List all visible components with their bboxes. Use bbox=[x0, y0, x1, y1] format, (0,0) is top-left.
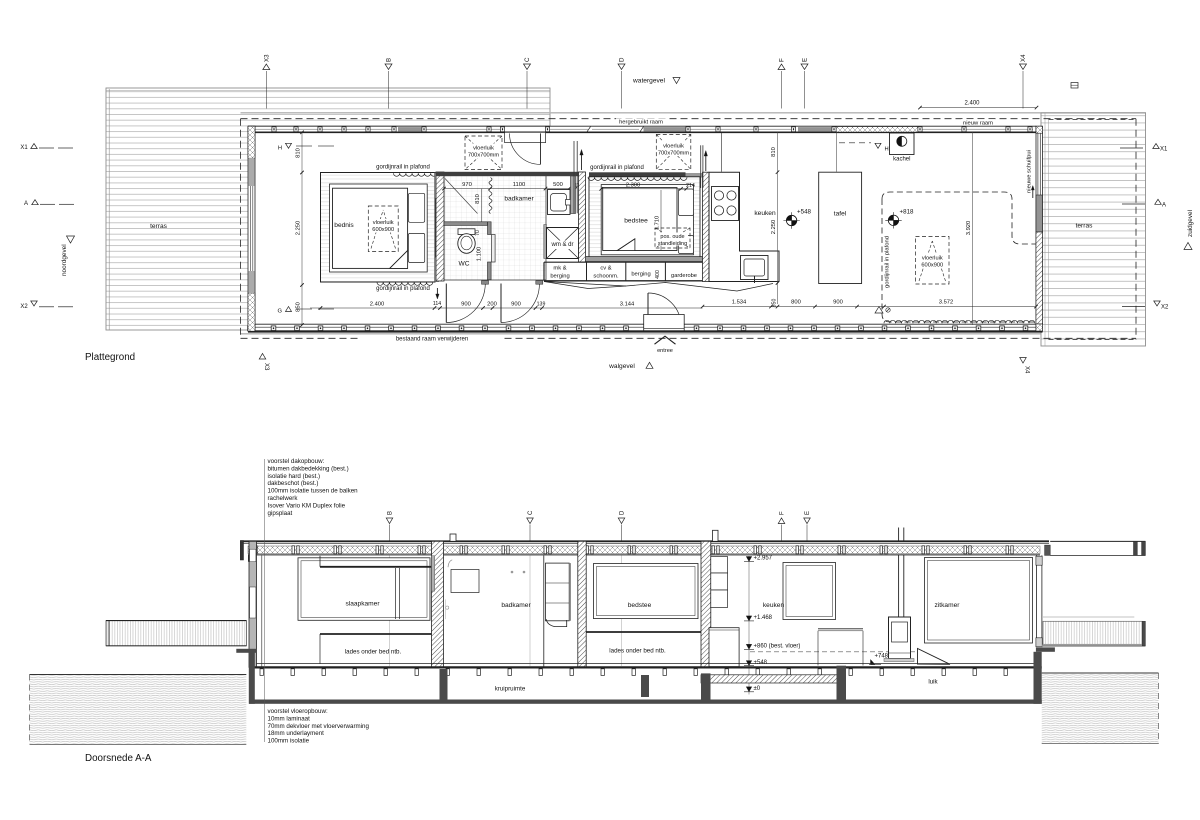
svg-text:970: 970 bbox=[462, 182, 472, 188]
svg-text:1100: 1100 bbox=[513, 182, 525, 188]
svg-text:H: H bbox=[278, 146, 282, 152]
svg-text:kachel: kachel bbox=[893, 157, 910, 163]
svg-text:C: C bbox=[524, 57, 531, 62]
svg-text:900: 900 bbox=[511, 301, 521, 307]
svg-text:700x700mm: 700x700mm bbox=[658, 151, 690, 157]
svg-text:E: E bbox=[802, 58, 809, 62]
svg-text:2.400: 2.400 bbox=[370, 301, 385, 307]
svg-text:850: 850 bbox=[772, 299, 778, 308]
svg-text:D: D bbox=[620, 510, 626, 515]
svg-text:nieuwe schuifpui: nieuwe schuifpui bbox=[1027, 150, 1033, 193]
svg-text:badkamer: badkamer bbox=[504, 196, 534, 203]
svg-text:2.250: 2.250 bbox=[296, 221, 302, 236]
svg-text:X4: X4 bbox=[1020, 54, 1027, 62]
svg-text:2.300: 2.300 bbox=[626, 182, 641, 188]
svg-text:nieuw raam: nieuw raam bbox=[963, 120, 993, 126]
svg-text:18mm underlayment: 18mm underlayment bbox=[268, 730, 325, 737]
svg-text:dakbeschot (best.): dakbeschot (best.) bbox=[268, 480, 319, 487]
svg-text:+2.957: +2.957 bbox=[754, 556, 773, 562]
svg-text:wm & dr: wm & dr bbox=[550, 242, 573, 248]
svg-text:watergevel: watergevel bbox=[632, 78, 665, 85]
svg-text:lades onder bed ntb.: lades onder bed ntb. bbox=[345, 649, 402, 656]
svg-text:3.920: 3.920 bbox=[966, 221, 972, 236]
svg-text:10mm laminaat: 10mm laminaat bbox=[268, 715, 311, 722]
svg-text:bitumen dakbedekking (best.): bitumen dakbedekking (best.) bbox=[268, 465, 349, 472]
svg-text:gordijnrail in plafond: gordijnrail in plafond bbox=[590, 165, 644, 171]
svg-text:isolatie hard (best.): isolatie hard (best.) bbox=[268, 473, 321, 480]
svg-text:900: 900 bbox=[833, 300, 843, 306]
svg-text:B: B bbox=[388, 511, 394, 515]
svg-text:terras: terras bbox=[150, 223, 168, 230]
svg-text:700x700mm: 700x700mm bbox=[468, 153, 500, 159]
svg-text:X2: X2 bbox=[1161, 305, 1169, 311]
svg-text:gordijnrail in plafond: gordijnrail in plafond bbox=[376, 286, 430, 292]
svg-text:voorstel vloeropbouw:: voorstel vloeropbouw: bbox=[268, 708, 328, 715]
svg-text:vloerluik: vloerluik bbox=[663, 144, 684, 150]
svg-text:±0: ±0 bbox=[754, 686, 761, 692]
svg-text:H: H bbox=[885, 146, 889, 152]
svg-text:850: 850 bbox=[296, 302, 302, 312]
svg-text:+548: +548 bbox=[754, 660, 768, 666]
svg-text:X1: X1 bbox=[1160, 147, 1168, 153]
svg-text:1.100: 1.100 bbox=[477, 247, 483, 262]
svg-text:810: 810 bbox=[296, 148, 302, 158]
svg-text:bedstee: bedstee bbox=[624, 218, 648, 225]
svg-text:800: 800 bbox=[791, 300, 801, 306]
svg-text:schoonm.: schoonm. bbox=[593, 273, 619, 279]
svg-text:bedstee: bedstee bbox=[628, 602, 652, 609]
svg-text:noordgevel: noordgevel bbox=[61, 244, 68, 276]
svg-text:139: 139 bbox=[537, 301, 546, 307]
svg-text:lades onder bed ntb.: lades onder bed ntb. bbox=[609, 648, 666, 655]
svg-text:garderobe: garderobe bbox=[671, 273, 697, 279]
svg-text:tafel: tafel bbox=[834, 211, 847, 218]
svg-text:mk &: mk & bbox=[553, 266, 566, 272]
svg-text:gordijnrail in plafond: gordijnrail in plafond bbox=[376, 165, 430, 171]
svg-text:Doorsnede A-A: Doorsnede A-A bbox=[85, 753, 152, 764]
svg-text:X3: X3 bbox=[264, 54, 271, 62]
svg-text:B: B bbox=[386, 58, 393, 62]
svg-text:luik: luik bbox=[928, 679, 938, 686]
svg-text:vloerluik: vloerluik bbox=[473, 146, 494, 152]
svg-text:810: 810 bbox=[771, 147, 777, 157]
svg-text:Plattegrond: Plattegrond bbox=[85, 352, 135, 363]
svg-text:+748: +748 bbox=[874, 654, 888, 660]
svg-text:walgevel: walgevel bbox=[608, 363, 635, 370]
svg-text:F: F bbox=[780, 511, 786, 515]
svg-text:214: 214 bbox=[686, 183, 695, 189]
svg-text:1.534: 1.534 bbox=[732, 300, 747, 306]
svg-text:200: 200 bbox=[487, 301, 497, 307]
svg-text:+860 (best. vloer): +860 (best. vloer) bbox=[754, 644, 801, 650]
svg-text:keuken: keuken bbox=[754, 210, 776, 217]
svg-text:3.572: 3.572 bbox=[939, 300, 954, 306]
svg-text:badkamer: badkamer bbox=[501, 602, 531, 609]
svg-text:voorstel dakopbouw:: voorstel dakopbouw: bbox=[268, 458, 325, 465]
svg-text:600x900: 600x900 bbox=[921, 263, 943, 269]
svg-text:70: 70 bbox=[475, 230, 481, 236]
svg-text:terras: terras bbox=[1076, 223, 1094, 230]
svg-text:+818: +818 bbox=[900, 209, 914, 216]
svg-text:cv &: cv & bbox=[600, 266, 611, 272]
svg-text:bednis: bednis bbox=[334, 222, 354, 229]
svg-text:zuidgevel: zuidgevel bbox=[1187, 210, 1194, 237]
svg-text:A: A bbox=[24, 201, 28, 207]
svg-text:2.250: 2.250 bbox=[771, 220, 777, 235]
svg-text:70mm dekvloer met vloerverwarm: 70mm dekvloer met vloerverwarming bbox=[268, 723, 370, 730]
svg-text:C: C bbox=[528, 510, 534, 515]
svg-text:A: A bbox=[1162, 202, 1166, 208]
svg-text:400: 400 bbox=[655, 270, 661, 279]
svg-text:E: E bbox=[805, 511, 811, 515]
svg-text:600x900: 600x900 bbox=[372, 227, 394, 233]
svg-text:bestaand raam verwijderen: bestaand raam verwijderen bbox=[396, 336, 468, 342]
svg-text:gordijnrail in plafond: gordijnrail in plafond bbox=[885, 236, 891, 288]
svg-text:zitkamer: zitkamer bbox=[935, 602, 961, 609]
svg-text:G: G bbox=[277, 309, 282, 315]
svg-text:hergebruikt raam: hergebruikt raam bbox=[619, 120, 663, 126]
svg-text:X4: X4 bbox=[1023, 366, 1029, 374]
svg-text:entree: entree bbox=[657, 348, 673, 354]
svg-text:Isover Vario KM Duplex folie: Isover Vario KM Duplex folie bbox=[268, 502, 346, 509]
svg-text:500: 500 bbox=[553, 182, 563, 188]
svg-text:WC: WC bbox=[459, 261, 470, 268]
svg-text:114: 114 bbox=[433, 301, 441, 307]
svg-text:D: D bbox=[619, 57, 626, 62]
svg-text:3.144: 3.144 bbox=[620, 301, 635, 307]
svg-text:+548: +548 bbox=[797, 209, 811, 216]
svg-text:2.400: 2.400 bbox=[964, 100, 980, 106]
svg-text:standleiding: standleiding bbox=[658, 241, 687, 247]
svg-text:+1.468: +1.468 bbox=[754, 615, 773, 621]
svg-text:rachelwerk: rachelwerk bbox=[268, 495, 299, 502]
svg-text:810: 810 bbox=[475, 194, 481, 204]
svg-text:X2: X2 bbox=[20, 304, 28, 310]
svg-text:kruipruimte: kruipruimte bbox=[495, 686, 526, 693]
svg-text:100mm isolatie tussen de balke: 100mm isolatie tussen de balken bbox=[268, 488, 359, 495]
svg-text:F: F bbox=[779, 58, 786, 62]
svg-text:X1: X1 bbox=[20, 145, 28, 151]
svg-text:slaapkamer: slaapkamer bbox=[345, 601, 380, 608]
svg-text:vloerluik: vloerluik bbox=[373, 220, 394, 226]
svg-text:berging: berging bbox=[550, 273, 569, 279]
svg-text:pos. oude: pos. oude bbox=[660, 234, 684, 240]
svg-text:vloerluik: vloerluik bbox=[922, 256, 943, 262]
svg-text:gipsplaat: gipsplaat bbox=[268, 510, 293, 517]
svg-text:keuken: keuken bbox=[763, 602, 785, 609]
svg-text:berging: berging bbox=[631, 271, 650, 277]
svg-text:900: 900 bbox=[461, 301, 471, 307]
svg-text:100mm isolatie: 100mm isolatie bbox=[268, 738, 310, 745]
svg-text:X3: X3 bbox=[263, 363, 269, 371]
